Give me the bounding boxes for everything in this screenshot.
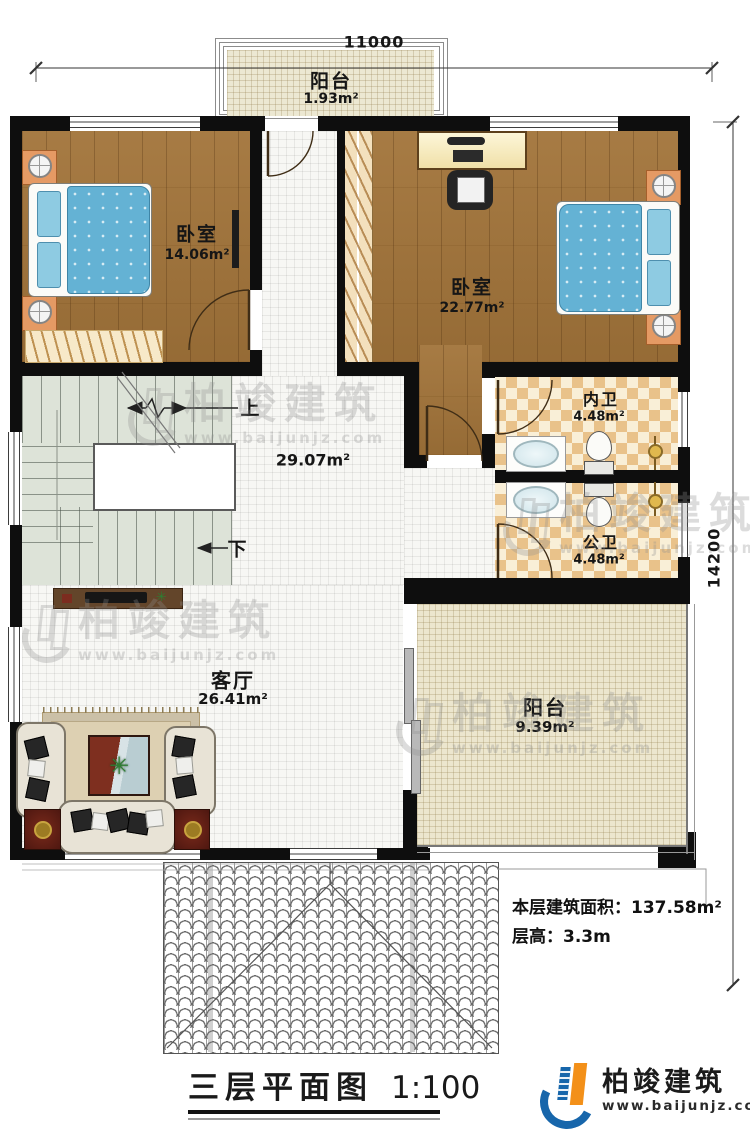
chair-seat [457,177,485,203]
drawing-scale: 1:100 [391,1070,480,1106]
hall-area: 29.07m² [276,451,350,470]
cushion [25,777,50,802]
floor-height-label: 层高： [512,927,563,947]
lamp-icon [28,300,52,324]
brand-website[interactable]: www.baijunjz.com [602,1098,750,1114]
corner-cabinet [24,809,61,850]
room-label-bath-public: 公卫 [583,529,619,553]
decor-box [62,594,72,603]
corner-cabinet [174,809,210,850]
basin-icon [513,486,559,514]
dimension-right: 14200 [705,528,724,589]
brand-company: 柏竣建筑 [602,1068,750,1098]
window [490,116,618,131]
wall [10,116,22,432]
room-area-balcony-top: 1.93m² [303,91,358,107]
window [70,116,200,131]
bed [28,183,152,297]
cushion [145,809,164,828]
desk [417,131,527,170]
drawing-title: 三层平面图 [188,1062,373,1107]
tv-cabinet: ✳ [53,588,183,609]
floor-plan-canvas: ✳ ✳ [0,0,750,1132]
stair-flight-upper [22,376,232,443]
lamp-icon [28,154,52,178]
sink [506,482,566,518]
plant-icon: ✳ [109,752,129,780]
nightstand [22,150,57,185]
title-underline [188,1110,440,1114]
wall [10,525,22,627]
towel-ring-icon [648,494,663,509]
window [8,432,22,525]
wall [678,447,690,503]
room-area-balcony-bottom: 9.39m² [515,718,574,736]
dimension-top: 11000 [344,33,405,52]
bed [556,201,680,315]
sliding-door[interactable] [411,720,421,794]
nightstand [646,310,681,345]
pillow [37,191,61,237]
window [676,392,690,447]
cushion [27,759,46,778]
rosette-icon [34,821,52,839]
nightstand [22,296,57,331]
window [290,848,377,860]
stair-flight-lower [60,507,232,585]
stair-void [93,443,236,511]
roof-band [208,862,213,1052]
sliding-door[interactable] [404,648,414,724]
pillow [647,260,671,306]
wall [337,362,404,376]
brand-logo-icon [540,1062,592,1120]
lamp-icon [652,314,676,338]
tv [85,592,147,603]
balcony-rail [417,845,688,847]
toilet [584,431,614,475]
rosette-icon [184,821,202,839]
drawing-title-block: 三层平面图 1:100 [188,1062,480,1107]
lamp-icon [652,174,676,198]
wall [250,131,262,290]
room-label-bedroom-right: 卧室 [451,273,493,300]
wall [200,116,265,131]
quilt [559,204,642,312]
room-label-balcony-bottom: 阳台 [523,692,567,721]
desk-chair [447,170,493,210]
rug-fringe [43,707,199,713]
balcony-rail [694,604,695,860]
room-label-balcony-top: 阳台 [310,67,352,94]
pillow [37,242,61,288]
toilet-tank-icon [584,461,614,475]
corridor [262,131,337,376]
floor-height-value: 3.3m [563,927,611,947]
window [676,503,690,557]
balcony-rail [686,604,688,854]
floor-height-note: 层高：3.3m [512,922,611,947]
hall-east-passage [404,468,495,578]
toilet [584,483,614,527]
desk-lamp-icon [447,137,485,145]
sink [506,436,566,472]
wall [337,131,345,362]
towel-ring-icon [648,444,663,459]
cushion [172,774,197,799]
window [8,627,22,722]
stair-down-label: 下 [227,535,248,562]
floor-area-note: 本层建筑面积：137.58m² [512,893,722,918]
stair-up-label: 上 [240,394,261,421]
toilet-bowl-icon [586,497,612,527]
pillow [647,209,671,255]
roof-tiles [163,862,499,1054]
room-label-bath-private: 内卫 [583,386,619,410]
nightstand [646,170,681,205]
wall [404,578,690,604]
room-area-bath-private: 4.48m² [573,410,624,425]
tv-wall-mounted [232,210,239,268]
cushion [175,756,193,774]
roof-band [410,862,415,1052]
wall [10,362,265,376]
room-area-bedroom-left: 14.06m² [164,247,229,263]
wall [200,848,290,860]
room-area-bedroom-right: 22.77m² [439,300,504,316]
room-label-bedroom-left: 卧室 [176,220,218,247]
coffee-table: ✳ [88,735,150,796]
keyboard [453,150,483,162]
bedroom-right-entry-nook [419,345,482,455]
room-area-living: 26.41m² [198,690,268,708]
wardrobe [345,131,373,362]
wall [482,362,678,377]
toilet-tank-icon [584,483,614,497]
wall [318,116,490,131]
toilet-bowl-icon [586,431,612,461]
room-area-bath-public: 4.48m² [573,553,624,568]
title-underline-thin [188,1118,440,1120]
rug [25,330,163,363]
plant-icon: ✳ [156,590,167,605]
quilt [67,186,150,294]
brand-block: 柏竣建筑 www.baijunjz.com [540,1062,750,1120]
basin-icon [513,440,559,468]
floor-area-value: 137.58m² [631,898,722,918]
wall [404,455,427,468]
balcony-rail [417,852,695,853]
floor-area-label: 本层建筑面积： [512,898,631,918]
